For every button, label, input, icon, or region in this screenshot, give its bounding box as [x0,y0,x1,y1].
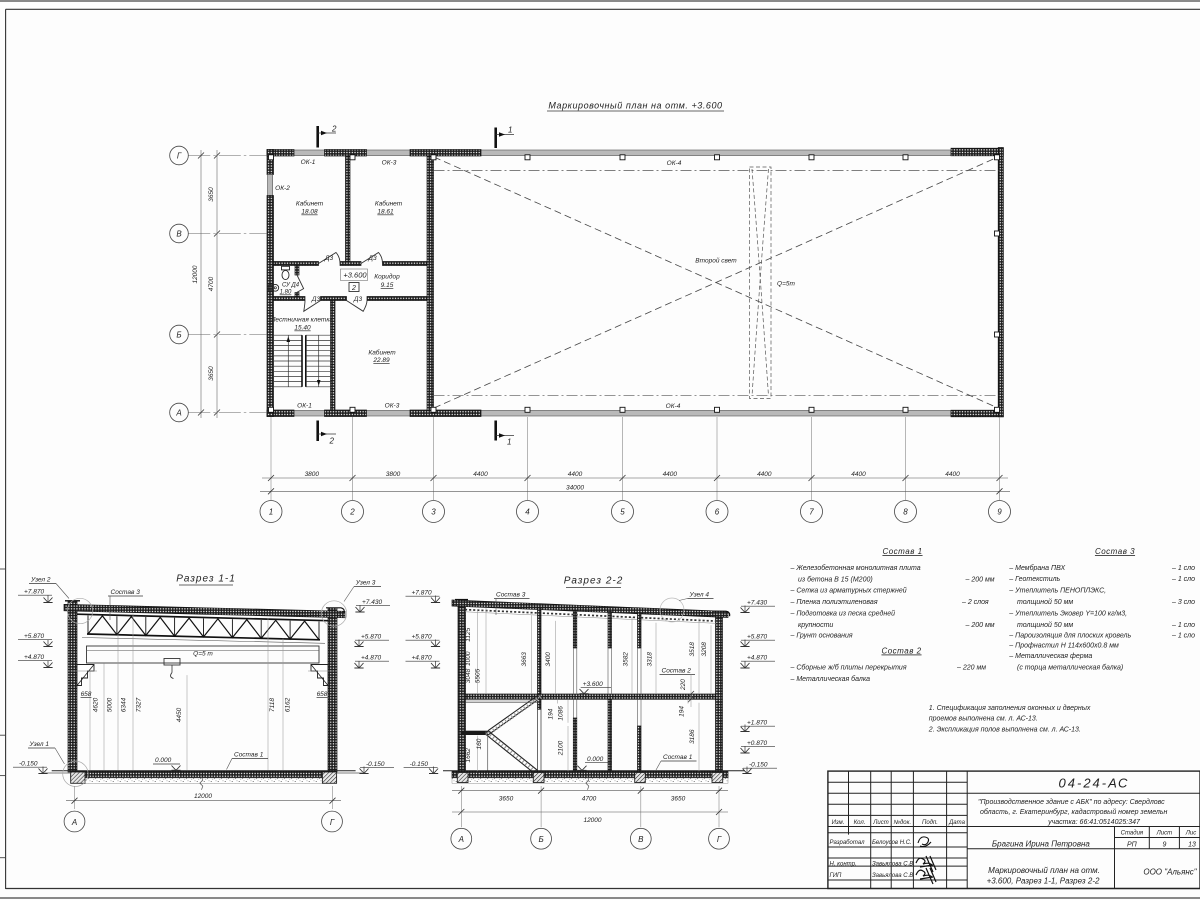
svg-text:+5.870: +5.870 [24,633,44,640]
svg-text:– Мембрана ПВХ: – Мембрана ПВХ [1008,564,1065,572]
svg-text:+3.600: +3.600 [343,271,367,280]
svg-text:Кабинет: Кабинет [368,349,396,357]
svg-text:3: 3 [431,508,436,517]
svg-text:Завьялова С.В: Завьялова С.В [872,873,913,879]
svg-text:Д3: Д3 [353,296,363,303]
svg-text:+4.870: +4.870 [24,654,44,661]
svg-text:9: 9 [1162,842,1166,849]
svg-text:– Сетка из арматурных стер: – Сетка из арматурных стержней [790,587,907,595]
svg-text:Узел 2: Узел 2 [30,577,51,584]
svg-text:7327: 7327 [136,697,143,712]
svg-text:В: В [638,835,644,844]
svg-text:– Утеплитель Эковер Y=100: – Утеплитель Эковер Y=100 кг/м3, [1008,611,1127,618]
svg-text:– Подготовка из песка сред: – Подготовка из песка средней [790,610,896,618]
svg-text:Н. контр.: Н. контр. [830,862,857,868]
svg-text:Узел 3: Узел 3 [355,580,376,587]
svg-text:194: 194 [548,708,555,719]
svg-text:– Профнастил Н 114х600х0.8: – Профнастил Н 114х600х0.8 мм [1008,643,1119,650]
svg-text:Завьялова С.В: Завьялова С.В [872,862,913,868]
svg-text:+3.600, Разрез 1-1, Разрез: +3.600, Разрез 1-1, Разрез 2-2 [987,877,1100,886]
svg-text:из бетона В 15 (М200): из бетона В 15 (М200) [798,576,873,584]
svg-text:8: 8 [903,508,908,517]
svg-text:Состав 1: Состав 1 [663,754,693,761]
svg-text:Кабинет: Кабинет [375,200,403,208]
svg-text:– Утеплитель ПЕНОПЛЭКС,: – Утеплитель ПЕНОПЛЭКС, [1008,588,1106,595]
svg-text:Состав 2: Состав 2 [662,668,692,675]
svg-text:-0.150: -0.150 [410,761,429,768]
svg-text:2: 2 [331,125,337,134]
svg-text:4450: 4450 [176,707,183,722]
svg-text:Стадия: Стадия [1121,831,1144,837]
svg-text:– Металлическая ферма: – Металлическая ферма [1008,653,1092,660]
svg-text:0.000: 0.000 [155,757,172,764]
svg-text:ОК-4: ОК-4 [666,403,681,410]
svg-text:Узел 1: Узел 1 [29,741,50,748]
svg-text:12000: 12000 [192,265,199,283]
svg-text:+5.870: +5.870 [361,634,381,641]
svg-text:7: 7 [809,508,814,517]
svg-text:Разрез 1-1: Разрез 1-1 [176,574,236,585]
svg-text:Коридор: Коридор [374,273,400,281]
svg-text:15.40: 15.40 [294,325,311,332]
svg-text:область, г. Екатеринбург, к: область, г. Екатеринбург, кадастровый но… [980,808,1168,816]
svg-text:Лестничная клетка: Лестничная клетка [270,317,333,324]
svg-text:Д3: Д3 [311,296,321,303]
svg-text:18.61: 18.61 [377,209,394,216]
svg-text:658: 658 [317,691,328,698]
svg-text:ГИП: ГИП [830,873,843,879]
svg-text:2: 2 [349,508,355,517]
svg-text:толщиной 50 мм: толщиной 50 мм [1017,598,1073,606]
svg-text:9.15: 9.15 [381,282,394,289]
svg-text:ОК-2: ОК-2 [275,185,290,192]
svg-text:3800: 3800 [305,471,320,478]
svg-text:Подп.: Подп. [922,820,938,826]
svg-text:А: А [175,409,181,418]
svg-text:6: 6 [715,508,720,517]
svg-text:Состав 1: Состав 1 [882,547,922,556]
svg-text:34000: 34000 [566,484,584,491]
svg-text:+3.600: +3.600 [583,681,603,688]
svg-text:Состав 3: Состав 3 [1095,547,1135,556]
svg-text:0.000: 0.000 [587,756,604,763]
svg-text:160: 160 [476,738,483,749]
svg-text:Маркировочный план на отм.: Маркировочный план на отм. [988,866,1100,875]
svg-text:Состав 1: Состав 1 [234,752,264,759]
svg-text:2. Экспликация полов выполн: 2. Экспликация полов выполнена см. л. АС… [928,726,1081,733]
svg-text:7118: 7118 [269,698,276,712]
svg-text:5: 5 [620,508,625,517]
svg-text:3800: 3800 [386,471,401,478]
svg-text:участка: 66:41:0514025:347: участка: 66:41:0514025:347 [1047,819,1141,826]
svg-text:1125: 1125 [465,627,472,641]
svg-text:– 2 слоя: – 2 слоя [961,599,989,606]
svg-text:– Геотекстиль: – Геотекстиль [1008,576,1060,583]
svg-text:1086: 1086 [558,706,565,721]
svg-text:-0.150: -0.150 [366,761,385,768]
svg-text:Кол.: Кол. [854,820,866,826]
svg-text:1: 1 [508,126,512,135]
svg-text:5000: 5000 [107,697,114,712]
svg-text:2100: 2100 [558,740,565,756]
svg-text:3186: 3186 [689,729,696,744]
svg-text:13: 13 [1188,842,1196,849]
svg-text:– Пленка полиэтиленовая: – Пленка полиэтиленовая [790,599,878,606]
svg-text:4400: 4400 [945,471,960,478]
svg-text:+5.870: +5.870 [412,634,432,641]
svg-text:ОК-4: ОК-4 [667,160,682,167]
svg-text:Состав 3: Состав 3 [496,592,526,599]
svg-text:4400: 4400 [851,471,866,478]
svg-text:РП: РП [1127,842,1138,849]
svg-text:В: В [176,230,182,239]
svg-text:Г: Г [177,152,182,161]
svg-text:+7.870: +7.870 [412,590,432,597]
svg-text:-0.150: -0.150 [749,762,768,769]
svg-text:-0.150: -0.150 [19,761,38,768]
svg-text:2: 2 [329,437,335,446]
svg-text:4400: 4400 [663,471,678,478]
svg-text:Маркировочный план на отм. +3.: Маркировочный план на отм. +3.600 [548,101,722,111]
svg-text:Изм.: Изм. [832,820,845,826]
svg-text:– 220 мм: – 220 мм [956,665,986,672]
svg-text:+4.870: +4.870 [361,655,381,662]
svg-text:А: А [71,818,77,827]
svg-text:– Железобетонная монолитная: – Железобетонная монолитная плита [790,564,921,572]
svg-text:3400: 3400 [545,652,552,667]
svg-text:– 200 мм: – 200 мм [965,622,995,629]
svg-text:Состав 3: Состав 3 [111,589,141,596]
svg-text:+4.870: +4.870 [412,655,432,662]
svg-text:04-24-АС: 04-24-АС [1059,776,1130,791]
svg-text:3650: 3650 [671,796,686,803]
svg-text:4400: 4400 [568,471,583,478]
svg-text:Разработал: Разработал [830,840,866,846]
svg-text:3650: 3650 [499,796,514,803]
svg-text:1: 1 [507,438,511,447]
svg-text:3208: 3208 [701,642,708,657]
svg-text:3663: 3663 [521,652,528,667]
svg-text:– 200 мм: – 200 мм [965,577,995,584]
svg-text:4700: 4700 [208,276,215,291]
svg-text:Г: Г [330,818,335,827]
svg-text:1662: 1662 [465,748,472,763]
svg-text:12000: 12000 [194,793,212,800]
svg-text:+4.870: +4.870 [747,655,767,662]
svg-text:3048: 3048 [465,668,472,683]
svg-text:Узел 4: Узел 4 [689,592,710,599]
svg-text:+1.870: +1.870 [747,720,767,727]
svg-text:4620: 4620 [93,697,100,712]
svg-text:Лист: Лист [1156,831,1172,837]
svg-text:толщиной 50 мм: толщиной 50 мм [1017,621,1073,629]
svg-text:3650: 3650 [208,366,215,381]
svg-text:– Грунт основания: – Грунт основания [790,632,853,639]
svg-text:Белоусов Н.С.: Белоусов Н.С. [872,840,912,846]
svg-text:– 1 сло: – 1 сло [1171,632,1195,639]
svg-text:12000: 12000 [583,817,601,824]
svg-text:№док.: №док. [893,819,911,826]
svg-text:ОК-3: ОК-3 [385,403,400,410]
svg-text:4400: 4400 [473,471,488,478]
svg-text:1: 1 [269,508,273,517]
svg-text:658: 658 [81,691,92,698]
svg-text:1.80: 1.80 [280,290,292,296]
svg-text:(с торца металлическая балк: (с торца металлическая балка) [1017,664,1123,672]
svg-text:Брагина Ирина Петровна: Брагина Ирина Петровна [992,840,1090,849]
svg-text:220: 220 [680,679,687,691]
svg-text:ОК-1: ОК-1 [297,403,312,410]
svg-text:6344: 6344 [121,697,128,712]
svg-text:ОК-3: ОК-3 [382,160,397,167]
svg-text:– Металлическая балка: – Металлическая балка [790,675,871,683]
svg-text:Д3: Д3 [367,255,377,262]
svg-text:ОК-1: ОК-1 [301,159,316,166]
svg-text:– Сборные ж/б плиты перекр: – Сборные ж/б плиты перекрытия [790,664,907,672]
svg-text:Q=5т: Q=5т [777,281,795,288]
svg-text:3582: 3582 [622,652,629,667]
svg-text:– 1 сло: – 1 сло [1171,576,1195,583]
svg-text:3650: 3650 [208,187,215,202]
svg-text:4: 4 [525,508,530,517]
svg-text:194: 194 [678,706,685,717]
svg-text:– Пароизоляция для плоских: – Пароизоляция для плоских кровель [1008,631,1131,639]
svg-text:Второй свет: Второй свет [695,257,737,265]
svg-text:6162: 6162 [285,697,292,712]
svg-text:2: 2 [351,285,356,292]
svg-text:1000: 1000 [465,651,472,666]
svg-text:Состав 2: Состав 2 [881,647,921,656]
svg-text:– 1 сло: – 1 сло [1171,622,1195,629]
svg-text:Д3: Д3 [324,255,334,262]
svg-text:проемов выполнена см. л. А: проемов выполнена см. л. АС-13. [929,715,1038,722]
svg-text:ООО "Альянс": ООО "Альянс" [1143,868,1197,877]
svg-text:9: 9 [997,508,1002,517]
svg-text:Кабинет: Кабинет [296,200,324,208]
svg-text:Дата: Дата [948,820,965,826]
svg-text:крупности: крупности [798,622,833,629]
svg-text:– 3 сло: – 3 сло [1171,599,1195,606]
svg-text:СУ Д4: СУ Д4 [282,283,300,289]
svg-text:22.89: 22.89 [372,357,390,364]
svg-text:3318: 3318 [646,652,653,667]
svg-text:18.08: 18.08 [301,209,318,216]
svg-text:"Производственное здание с: "Производственное здание с АБК" по адрес… [978,798,1165,806]
svg-text:Разрез 2-2: Разрез 2-2 [564,576,624,587]
svg-text:Q=5 т: Q=5 т [193,651,213,658]
svg-text:Лис: Лис [1185,831,1196,837]
svg-text:Г: Г [717,835,722,844]
svg-text:5505: 5505 [475,668,482,683]
svg-text:А: А [458,835,464,844]
svg-text:+0.870: +0.870 [747,740,767,747]
svg-text:1. Спецификация заполнения: 1. Спецификация заполнения оконных и две… [929,704,1091,712]
svg-text:3518: 3518 [689,642,696,657]
svg-text:4700: 4700 [582,796,597,803]
svg-text:Б: Б [176,331,181,340]
svg-text:– 1 сло: – 1 сло [1171,565,1195,572]
svg-text:+7.870: +7.870 [24,589,44,596]
svg-text:Б: Б [538,835,543,844]
svg-text:Лист: Лист [872,820,888,826]
svg-text:+7.430: +7.430 [362,599,382,606]
svg-text:+7.430: +7.430 [747,600,767,607]
svg-text:+5.870: +5.870 [747,634,767,641]
svg-text:4400: 4400 [757,471,772,478]
